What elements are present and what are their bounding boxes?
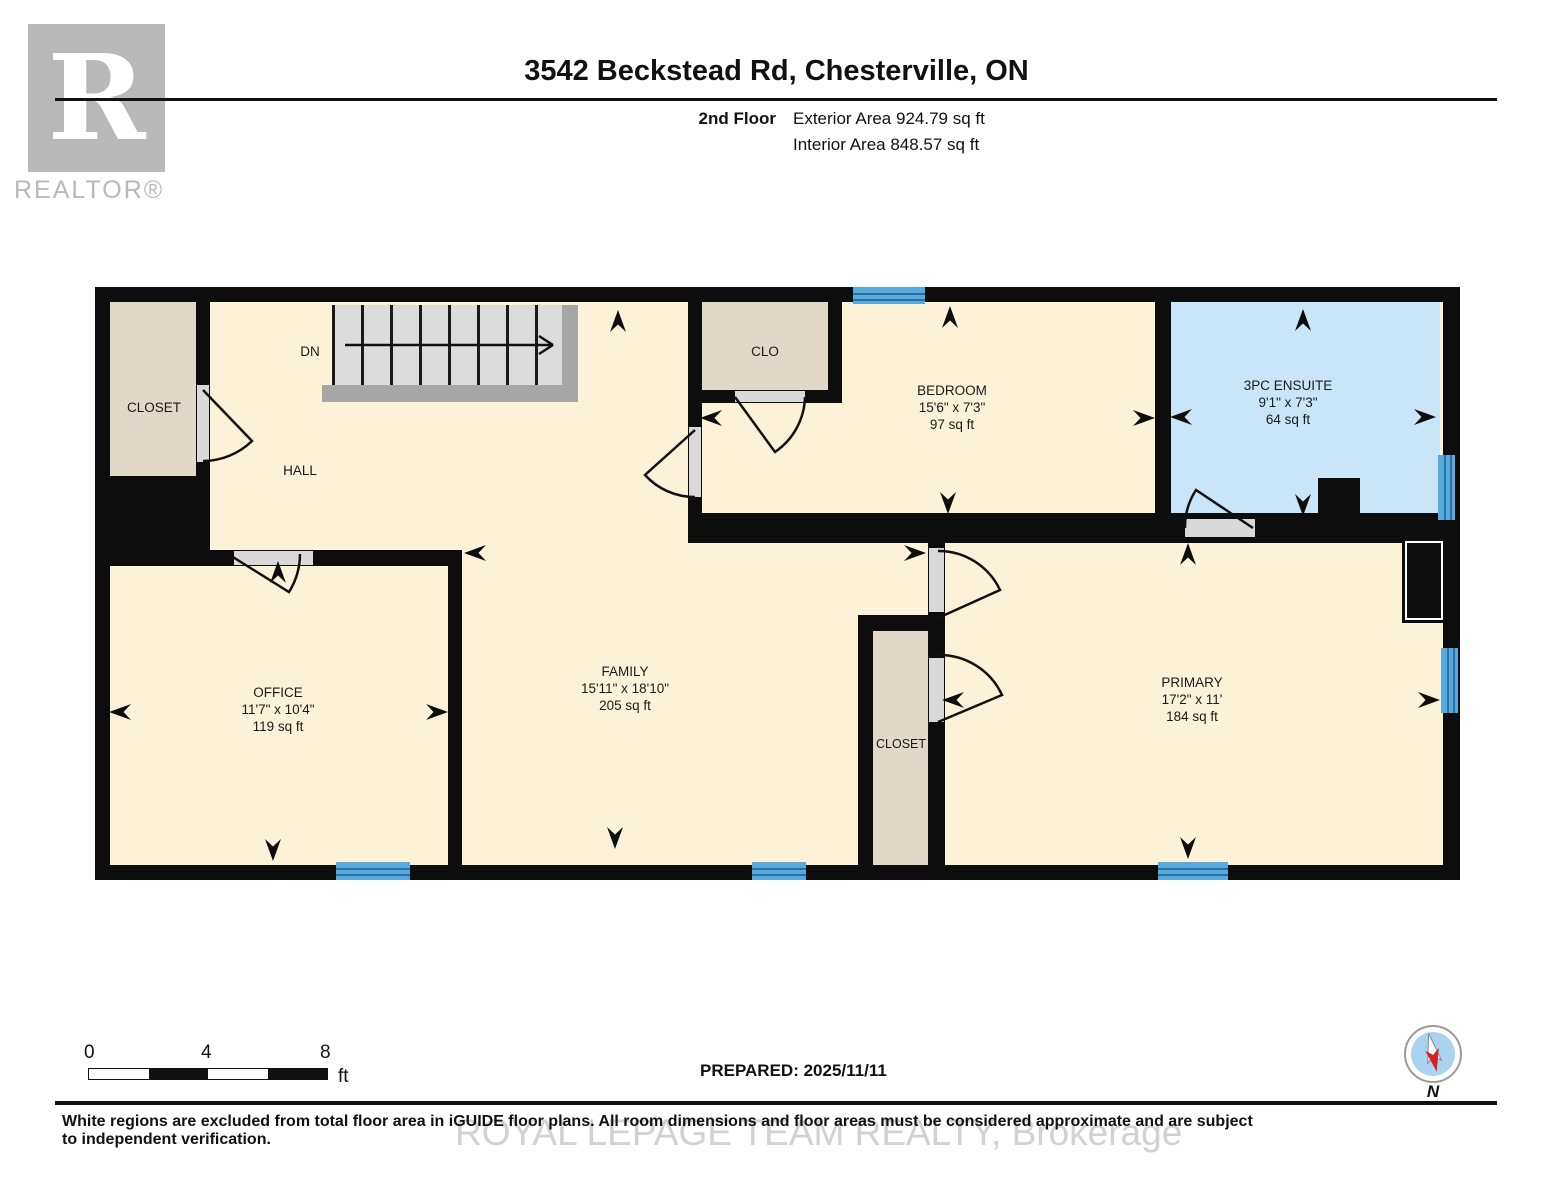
label-ensuite: 3PC ENSUITE 9'1" x 7'3" 64 sq ft — [1244, 377, 1333, 428]
door-swings — [203, 390, 1253, 722]
scale-tick-4: 4 — [201, 1042, 212, 1064]
stairs-direction-arrow — [345, 336, 553, 354]
scale-tick-0: 0 — [84, 1042, 95, 1064]
label-bedroom: BEDROOM 15'6" x 7'3" 97 sq ft — [917, 382, 987, 433]
label-closet-mid: CLOSET — [876, 736, 926, 753]
doors-and-arrows-overlay — [95, 287, 1460, 880]
compass-icon — [1400, 1024, 1466, 1090]
label-clo: CLO — [751, 343, 779, 360]
prepared-date: PREPARED: 2025/11/11 — [700, 1061, 887, 1081]
label-office: OFFICE 11'7" x 10'4" 119 sq ft — [241, 684, 314, 735]
interior-area-text: Interior Area 848.57 sq ft — [793, 135, 979, 155]
scale-bar — [88, 1068, 328, 1080]
disclaimer-text: White regions are excluded from total fl… — [62, 1113, 1262, 1149]
floor-label: 2nd Floor — [0, 109, 776, 129]
scale-tick-8: 8 — [320, 1042, 331, 1064]
label-primary: PRIMARY 17'2" x 11' 184 sq ft — [1161, 674, 1222, 725]
label-stairs-dn: DN — [300, 343, 320, 360]
label-family: FAMILY 15'11" x 18'10" 205 sq ft — [581, 663, 669, 714]
footer-divider — [55, 1101, 1497, 1105]
label-closet-top-left: CLOSET — [127, 399, 181, 416]
scale-unit: ft — [338, 1066, 349, 1088]
dimension-arrows — [109, 306, 1440, 861]
realtor-brand-text: REALTOR® — [14, 176, 194, 205]
label-hall: HALL — [283, 462, 317, 479]
header-divider — [55, 98, 1497, 101]
exterior-area-text: Exterior Area 924.79 sq ft — [793, 109, 985, 129]
floor-plan: CLOSET DN HALL CLO BEDROOM 15'6" x 7'3" … — [95, 287, 1460, 880]
compass-north-label: N — [1400, 1082, 1466, 1102]
page-title: 3542 Beckstead Rd, Chesterville, ON — [0, 55, 1553, 88]
